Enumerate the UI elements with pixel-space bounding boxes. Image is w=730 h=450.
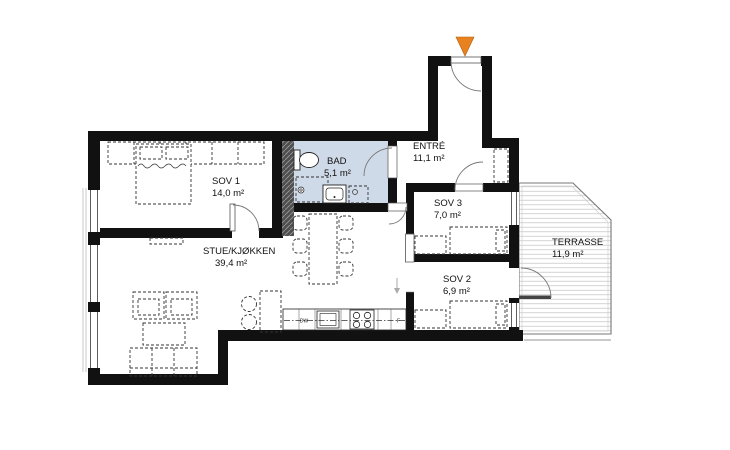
window-stue-1 [88,245,100,302]
svg-text:5,1 m²: 5,1 m² [324,168,351,179]
bistro-set [242,291,282,332]
svg-text:11,1 m²: 11,1 m² [413,153,445,164]
technical-shaft [282,141,294,236]
dishwasher-label: DW [300,319,309,325]
room-label-sov2: SOV 2 6,9 m² [443,274,471,297]
sofa [130,348,197,376]
sov2-dresser [415,310,446,328]
svg-text:SOV 3: SOV 3 [434,198,462,209]
svg-text:6,9 m²: 6,9 m² [443,286,470,297]
dining-set [293,214,353,284]
svg-text:SOV 1: SOV 1 [212,176,240,187]
floor-drain-icon [298,187,304,193]
room-label-sov1: SOV 1 14,0 m² [212,176,244,199]
svg-text:ENTRÉ: ENTRÉ [413,141,445,152]
sov3-dresser [415,236,446,254]
sink-icon [323,185,346,203]
sov1-bed [136,144,191,204]
fridge-label: F [397,319,400,325]
floor-plan-canvas: DW F SOV 1 14,0 m² BAD 5,1 m² ENTRÉ 11,1… [0,0,730,450]
window-sov3 [509,192,519,225]
room-label-entre: ENTRÉ 11,1 m² [413,141,445,164]
window-sov1 [88,190,100,232]
sov2-door [406,234,415,292]
svg-text:BAD: BAD [327,156,347,167]
terrace-deck [519,183,611,340]
kitchen-sink-icon [317,311,339,328]
coffee-table [143,323,185,345]
sov3-bed [450,227,507,254]
sov2-bed [450,301,507,328]
sov3-door [455,162,483,191]
svg-text:14,0 m²: 14,0 m² [212,188,244,199]
entrance-arrow-icon [456,37,474,56]
svg-text:39,4 m²: 39,4 m² [215,258,247,269]
window-stue-2 [88,312,100,368]
svg-text:TERRASSE: TERRASSE [552,237,603,248]
passage-door [388,203,407,224]
svg-text:STUE/KJØKKEN: STUE/KJØKKEN [203,246,275,257]
room-label-sov3: SOV 3 7,0 m² [434,198,462,221]
floor-plan-page: DW F SOV 1 14,0 m² BAD 5,1 m² ENTRÉ 11,1… [0,0,730,450]
sofa-group [130,292,197,376]
svg-text:11,9 m²: 11,9 m² [552,249,584,260]
down-arrow-icon [394,278,400,294]
room-label-stue: STUE/KJØKKEN 39,4 m² [203,246,275,269]
svg-text:SOV 2: SOV 2 [443,274,471,285]
svg-text:7,0 m²: 7,0 m² [434,210,461,221]
stove-icon [350,310,374,329]
kitchen-counter: DW F [283,309,406,330]
sov1-door [230,204,259,231]
entre-closet [494,149,508,182]
tv-bench [150,238,183,244]
window-sov2 [509,303,519,327]
entry-door [451,57,481,91]
